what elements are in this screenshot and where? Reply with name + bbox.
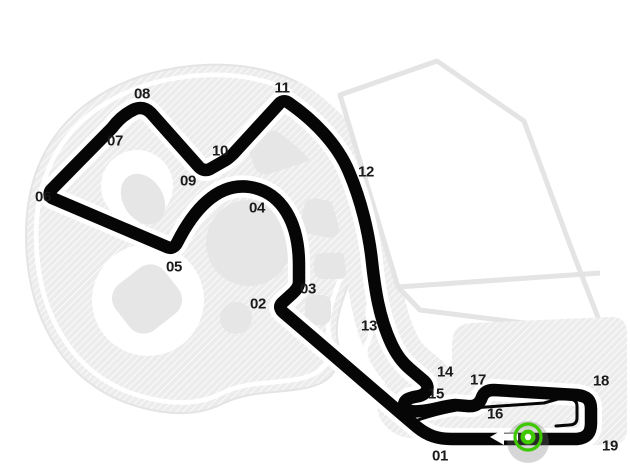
stadium-blob-small	[220, 302, 252, 334]
circuit-svg	[0, 0, 630, 472]
circuit-track-map: 01020304050607080910111213141516171819	[0, 0, 630, 472]
park-building-3	[314, 253, 348, 279]
